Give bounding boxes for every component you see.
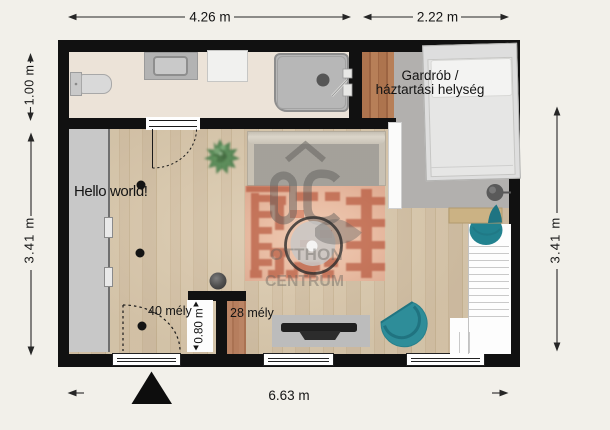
svg-text:3.41 m: 3.41 m — [548, 217, 563, 264]
svg-text:CENTRUM: CENTRUM — [265, 273, 344, 290]
svg-text:2.22 m: 2.22 m — [417, 10, 458, 25]
svg-text:6.63 m: 6.63 m — [268, 388, 309, 403]
svg-text:4.26 m: 4.26 m — [189, 10, 230, 25]
svg-text:1.00 m: 1.00 m — [23, 65, 37, 106]
svg-text:3.41 m: 3.41 m — [22, 217, 37, 264]
svg-text:OTTHON: OTTHON — [270, 245, 343, 264]
